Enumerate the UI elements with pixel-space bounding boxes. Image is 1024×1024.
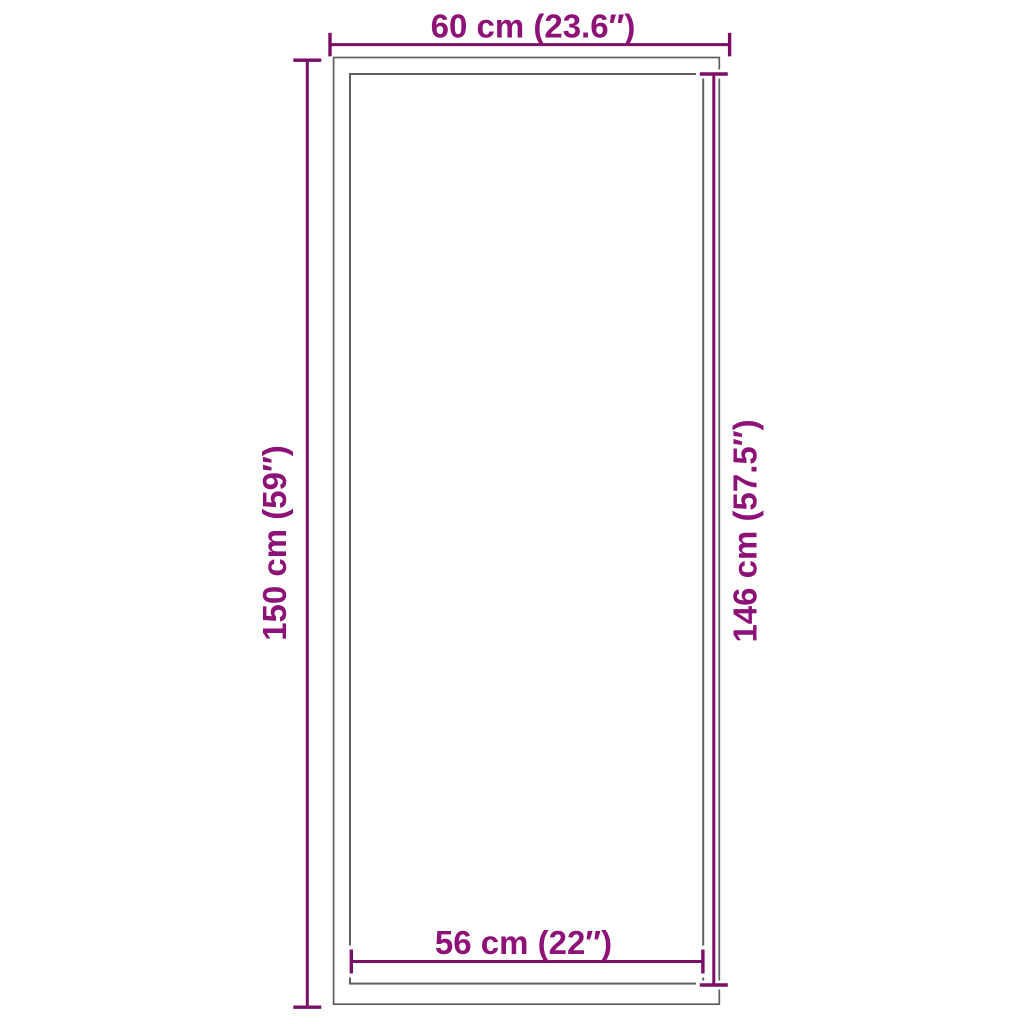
svg-text:150 cm (59″): 150 cm (59″) bbox=[256, 445, 293, 641]
svg-text:60 cm (23.6″): 60 cm (23.6″) bbox=[431, 7, 636, 44]
svg-text:146 cm (57.5″): 146 cm (57.5″) bbox=[727, 419, 764, 642]
svg-text:56 cm (22″): 56 cm (22″) bbox=[435, 924, 612, 961]
